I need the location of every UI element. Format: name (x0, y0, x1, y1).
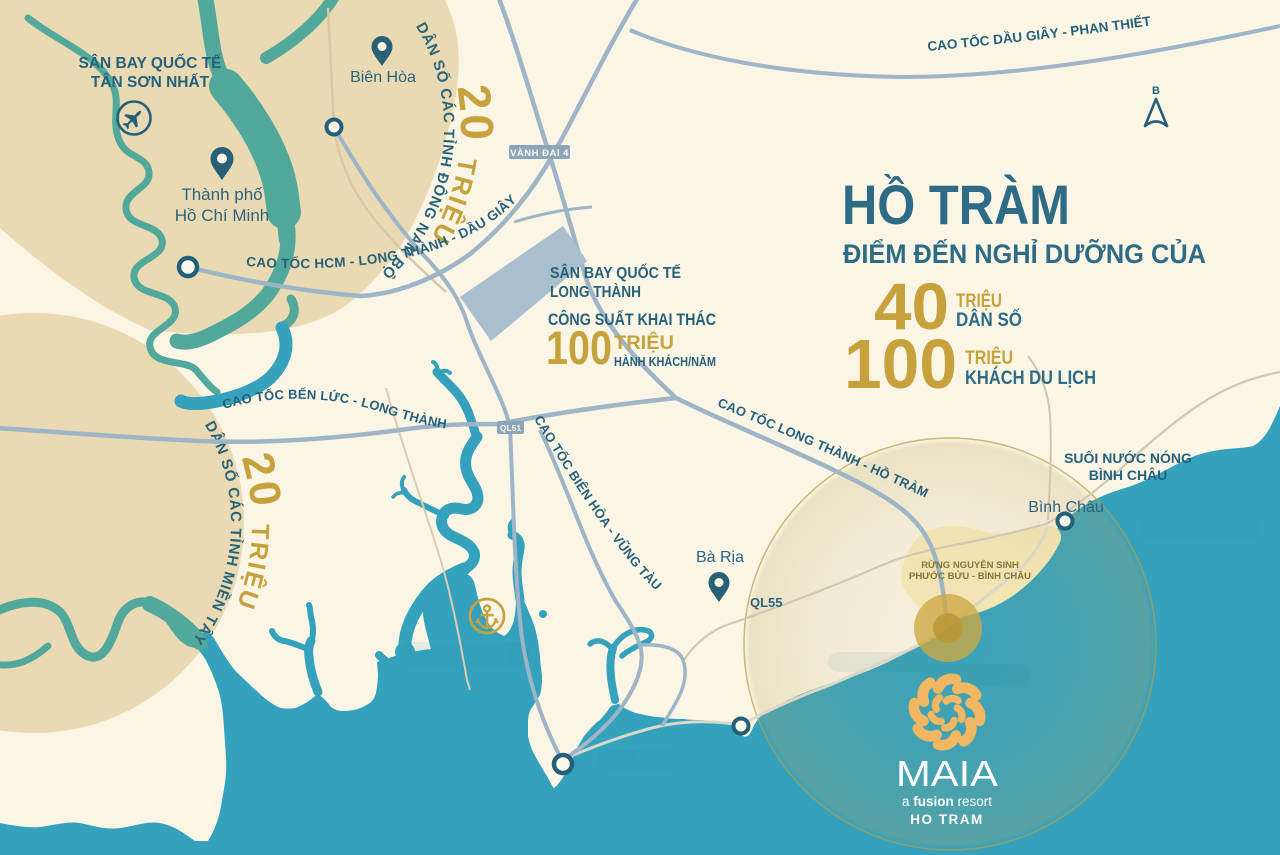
svg-text:HO TRAM: HO TRAM (910, 812, 984, 827)
svg-text:SÂN BAY QUỐC TẾ: SÂN BAY QUỐC TẾ (550, 262, 681, 282)
svg-text:TRIỆU: TRIỆU (614, 332, 674, 354)
svg-text:QL55: QL55 (750, 595, 783, 610)
svg-text:BÌNH CHÂU: BÌNH CHÂU (1089, 466, 1168, 483)
svg-text:HÀNH KHÁCH/NĂM: HÀNH KHÁCH/NĂM (614, 354, 716, 369)
svg-text:100: 100 (546, 321, 612, 374)
svg-text:PHƯỚC BỬU - BÌNH CHÂU: PHƯỚC BỬU - BÌNH CHÂU (909, 570, 1031, 582)
svg-text:VÀNH ĐAI 4: VÀNH ĐAI 4 (510, 148, 569, 159)
svg-text:TÂN SƠN NHẤT: TÂN SƠN NHẤT (91, 73, 210, 91)
svg-text:MAIA: MAIA (896, 753, 998, 794)
svg-text:SÂN BAY QUỐC TẾ: SÂN BAY QUỐC TẾ (79, 54, 222, 72)
svg-text:a fusion resort: a fusion resort (902, 794, 992, 809)
svg-text:Thành phố: Thành phố (181, 185, 263, 204)
svg-text:DÂN SỐ: DÂN SỐ (956, 309, 1022, 331)
svg-text:100: 100 (844, 325, 957, 403)
svg-text:RỪNG NGUYÊN SINH: RỪNG NGUYÊN SINH (921, 559, 1019, 571)
svg-text:Hồ Chí Minh: Hồ Chí Minh (175, 206, 269, 225)
svg-text:B: B (1152, 85, 1160, 97)
svg-text:Bình Châu: Bình Châu (1028, 499, 1104, 516)
svg-text:KHÁCH DU LỊCH: KHÁCH DU LỊCH (965, 367, 1096, 389)
svg-text:ĐIỂM ĐẾN NGHỈ DƯỠNG CỦA: ĐIỂM ĐẾN NGHỈ DƯỠNG CỦA (843, 237, 1206, 269)
svg-text:Biên Hòa: Biên Hòa (350, 69, 416, 86)
svg-text:TRIỆU: TRIỆU (956, 290, 1002, 312)
svg-text:HỒ TRÀM: HỒ TRÀM (842, 173, 1070, 236)
svg-text:Bà Rịa: Bà Rịa (696, 549, 744, 566)
svg-text:SUỐI NƯỚC NÓNG: SUỐI NƯỚC NÓNG (1064, 449, 1192, 466)
svg-text:QL51: QL51 (500, 423, 522, 433)
svg-text:TRIỆU: TRIỆU (965, 347, 1013, 369)
svg-text:LONG THÀNH: LONG THÀNH (550, 282, 641, 301)
